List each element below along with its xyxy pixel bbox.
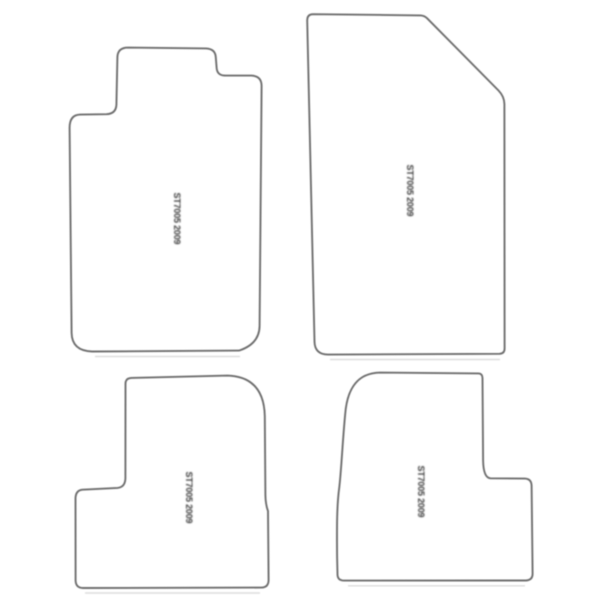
svg-text:ST7005 2009: ST7005 2009	[405, 165, 415, 217]
svg-text:ST7005 2009: ST7005 2009	[416, 466, 426, 518]
svg-text:ST7005 2009: ST7005 2009	[184, 472, 194, 524]
svg-text:ST7005 2009: ST7005 2009	[172, 193, 182, 245]
